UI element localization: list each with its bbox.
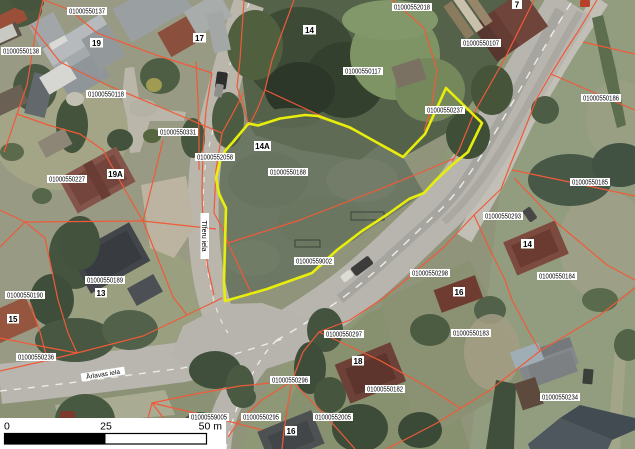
svg-text:01000552018: 01000552018	[394, 3, 430, 12]
svg-text:25: 25	[100, 421, 112, 433]
svg-text:18: 18	[354, 357, 363, 366]
svg-text:01000550297: 01000550297	[326, 330, 362, 339]
svg-text:0: 0	[4, 421, 10, 433]
svg-text:01000559005: 01000559005	[191, 413, 227, 422]
svg-text:01000550184: 01000550184	[539, 272, 575, 281]
svg-text:01000552058: 01000552058	[197, 153, 233, 162]
svg-text:17: 17	[195, 34, 204, 43]
svg-text:01000550107: 01000550107	[463, 39, 499, 48]
svg-text:01000559002: 01000559002	[296, 257, 332, 266]
svg-text:01000550298: 01000550298	[412, 269, 448, 278]
svg-text:01000550234: 01000550234	[542, 393, 578, 402]
svg-text:01000550295: 01000550295	[243, 413, 279, 422]
svg-text:14: 14	[305, 26, 314, 35]
svg-text:01000550189: 01000550189	[87, 276, 123, 285]
svg-text:01000550185: 01000550185	[572, 178, 608, 187]
svg-text:7: 7	[515, 0, 520, 9]
svg-text:01000550117: 01000550117	[345, 67, 381, 76]
svg-text:01000550293: 01000550293	[485, 212, 521, 221]
svg-text:01000550137: 01000550137	[69, 7, 105, 16]
svg-text:01000550190: 01000550190	[7, 291, 43, 300]
svg-text:01000550183: 01000550183	[453, 329, 489, 338]
svg-text:14A: 14A	[255, 142, 270, 151]
svg-text:01000550186: 01000550186	[583, 94, 619, 103]
svg-text:19A: 19A	[108, 170, 123, 179]
svg-text:Tīferu iela: Tīferu iela	[200, 220, 207, 251]
svg-text:50 m: 50 m	[199, 421, 223, 433]
svg-text:01000550138: 01000550138	[3, 47, 39, 56]
svg-text:01000550237: 01000550237	[427, 106, 463, 115]
svg-text:01000550188: 01000550188	[270, 168, 306, 177]
svg-text:01000550296: 01000550296	[272, 376, 308, 385]
svg-text:01000550227: 01000550227	[49, 175, 85, 184]
svg-text:16: 16	[455, 288, 464, 297]
svg-text:01000552005: 01000552005	[315, 413, 351, 422]
svg-text:19: 19	[92, 39, 101, 48]
svg-text:13: 13	[97, 289, 106, 298]
svg-text:01000550118: 01000550118	[88, 90, 124, 99]
svg-text:16: 16	[287, 427, 296, 436]
svg-text:01000550236: 01000550236	[18, 353, 54, 362]
svg-text:01000550331: 01000550331	[160, 128, 196, 137]
svg-text:14: 14	[523, 240, 532, 249]
svg-text:01000550182: 01000550182	[367, 385, 403, 394]
svg-text:15: 15	[9, 315, 18, 324]
